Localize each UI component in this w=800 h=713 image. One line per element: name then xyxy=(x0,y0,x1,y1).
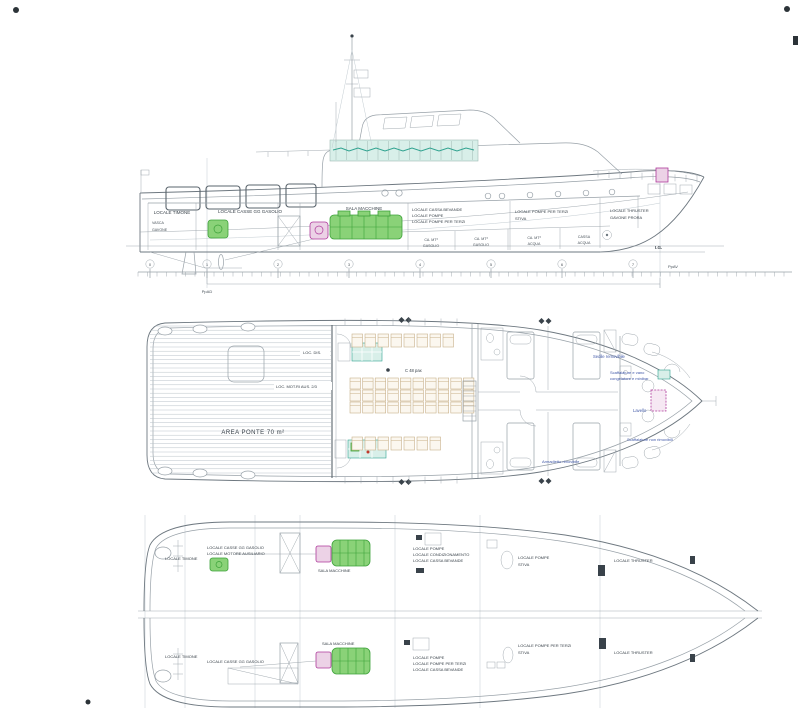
bitt-diamond xyxy=(539,478,545,484)
passenger-seat xyxy=(400,402,411,413)
general-arrangement-drawing: LOCALE TIMONE VASCA GAVONE LOCALE CASSE … xyxy=(0,0,800,713)
gearbox-plan-icon xyxy=(316,652,331,668)
annotation-scaffalature-non: Scaffalature non rimovibili xyxy=(627,437,673,442)
label-stiva-1: LOCALE POMPE xyxy=(518,555,550,560)
deck-cleats xyxy=(158,323,255,479)
profile-labels: LOCALE TIMONE VASCA GAVONE LOCALE CASSE … xyxy=(152,206,662,250)
tank-label: ACQUA xyxy=(578,241,591,245)
passenger-seat xyxy=(375,390,386,401)
tank-label: CA. MT³ xyxy=(424,238,438,242)
passenger-seat xyxy=(417,437,428,450)
annotation-scaffalature-1: Scaffalature e vano xyxy=(610,370,645,375)
station-number: 4 xyxy=(419,263,421,267)
label-pompe: LOCALE POMPE xyxy=(412,213,444,218)
passenger-seat xyxy=(430,334,441,347)
passenger-seat xyxy=(388,402,399,413)
passenger-seat xyxy=(413,402,424,413)
label-locale-timone: LOCALE TIMONE xyxy=(154,210,190,215)
rudder-stock-icon xyxy=(173,648,183,680)
antenna-platform-icon xyxy=(354,88,370,97)
thruster-marker xyxy=(598,565,605,576)
passenger-seat xyxy=(404,437,415,450)
station-number: 5 xyxy=(490,263,492,267)
frame-grid-lines xyxy=(145,515,600,708)
label-pompe-terzi-2: LOCALE POMPE PER TERZI xyxy=(515,209,568,214)
bathroom-fixtures xyxy=(481,328,503,474)
aux-engine-icon xyxy=(210,558,228,571)
saloon-window-band xyxy=(330,140,478,161)
lower-deck-bottom-half: LOCALE TIMONE LOCALE CASSE GG GASOLIO SA… xyxy=(144,618,758,707)
passenger-seat xyxy=(378,437,389,450)
rudder-propeller xyxy=(150,238,318,274)
removable-unit-icon xyxy=(651,390,666,411)
main-engine-icon xyxy=(330,211,402,239)
portholes xyxy=(382,189,615,199)
annotation-scaffalature-2: congelatore e minibar xyxy=(610,376,649,381)
tank-label: GASOLIO xyxy=(423,244,439,248)
passenger-seat xyxy=(350,378,361,389)
label-pompe-1: LOCALE POMPE xyxy=(413,546,445,551)
label-loc-dis: LOC. DIS. xyxy=(303,350,321,355)
label-ig: I.G. xyxy=(655,245,662,250)
passenger-seat xyxy=(417,334,428,347)
station-number: 0 xyxy=(149,263,151,267)
passenger-seat xyxy=(391,334,402,347)
mast-light-icon xyxy=(350,34,353,37)
passenger-seat xyxy=(451,402,462,413)
label-pompe-3: LOCALE CASSA BEVANDE xyxy=(413,667,464,672)
drawing-sheet: LOCALE TIMONE VASCA GAVONE LOCALE CASSE … xyxy=(0,0,800,713)
label-stiva: STIVA xyxy=(515,216,527,221)
bitt-diamond xyxy=(546,478,552,484)
scan-artifacts xyxy=(13,6,798,705)
tank-label: CASSA xyxy=(578,235,591,239)
annotation-armadietto: Armadietto rimovibile xyxy=(542,459,580,464)
label-pompe-2: LOCALE CONDIZIONAMENTO xyxy=(413,552,469,557)
profile-view: LOCALE TIMONE VASCA GAVONE LOCALE CASSE … xyxy=(126,34,792,294)
bitt-diamond xyxy=(539,318,545,324)
label-gavone-prora: GAVONE PRORA xyxy=(610,215,642,220)
passenger-seat xyxy=(413,390,424,401)
label-vasca: VASCA xyxy=(152,221,165,225)
aux-pump-icon xyxy=(208,220,228,238)
tank-label: CA. MT³ xyxy=(474,237,488,241)
annotation-sedile: Sedile removibile xyxy=(593,354,626,359)
label-stiva-2: STIVA xyxy=(518,562,530,567)
thruster-marker xyxy=(599,638,606,649)
station-number: 2 xyxy=(277,263,279,267)
bed xyxy=(507,332,534,379)
label-thruster: LOCALE THRUSTER xyxy=(614,558,653,563)
main-deck-plan: LOC. MOT.RI AUS. 2/3 LOC. DIS. AREA PONT… xyxy=(147,317,716,485)
passenger-seat xyxy=(363,378,374,389)
label-stiva-1: LOCALE POMPE PER TERZI xyxy=(518,643,571,648)
passenger-seat xyxy=(451,378,462,389)
label-timone: LOCALE TIMONE xyxy=(165,654,198,659)
passenger-seat xyxy=(400,390,411,401)
red-indicator-dot xyxy=(367,451,370,454)
bitt-diamond xyxy=(406,479,412,485)
label-loc-motori: LOC. MOT.RI AUS. 2/3 xyxy=(276,384,318,389)
windlass-icon xyxy=(656,168,668,182)
superstructure-profile xyxy=(141,110,700,210)
label-thruster: LOCALE THRUSTER xyxy=(614,650,653,655)
mast-icon xyxy=(332,34,372,148)
label-ppad: PpAD xyxy=(202,289,213,294)
main-engine-plan-icon xyxy=(332,648,370,674)
passenger-seat xyxy=(404,334,415,347)
radar-box-icon xyxy=(354,70,368,78)
cabin-section xyxy=(478,326,620,476)
label-sala-macchine: SALA MACCHINE xyxy=(346,206,383,211)
lower-deck-plan: LOCALE TIMONE LOCALE CASSE GG GASOLIO LO… xyxy=(138,515,762,708)
passenger-seat xyxy=(391,437,402,450)
passenger-seat xyxy=(388,390,399,401)
label-seat-count: C 48 pax xyxy=(405,368,423,373)
gearbox-icon xyxy=(310,222,328,239)
passenger-seat xyxy=(451,390,462,401)
profile-compartments xyxy=(148,196,640,250)
passenger-seat xyxy=(463,402,474,413)
frame-ruler: 01234567 PpAD PpAV xyxy=(138,260,792,294)
passenger-seat xyxy=(430,437,441,450)
tank-label: GASOLIO xyxy=(473,243,489,247)
passenger-seat xyxy=(438,390,449,401)
passenger-seat xyxy=(350,402,361,413)
label-pompe-1: LOCALE POMPE xyxy=(413,655,445,660)
passenger-seat xyxy=(463,390,474,401)
stern-flag xyxy=(141,170,149,192)
label-casse-1: LOCALE CASSE GG GASOLIO xyxy=(207,545,264,550)
tank-label: ACQUA xyxy=(528,242,541,246)
station-number: 3 xyxy=(348,263,350,267)
label-pompe-terzi: LOCALE POMPE PER TERZI xyxy=(412,219,465,224)
passenger-seat xyxy=(426,402,437,413)
label-timone: LOCALE TIMONE xyxy=(165,556,198,561)
passenger-seat xyxy=(426,390,437,401)
label-casse: LOCALE CASSE GG GASOLIO xyxy=(207,659,264,664)
label-stiva-2: STIVA xyxy=(518,650,530,655)
passenger-seat xyxy=(363,390,374,401)
passenger-seat xyxy=(365,437,376,450)
bitt-diamond xyxy=(406,317,412,323)
bed xyxy=(507,423,534,470)
cross-brace-icon xyxy=(280,533,300,573)
lower-deck-top-half: LOCALE TIMONE LOCALE CASSE GG GASOLIO LO… xyxy=(144,522,758,611)
label-sala: SALA MACCHINE xyxy=(318,568,351,573)
passenger-seat xyxy=(378,334,389,347)
main-engine-plan-icon xyxy=(332,540,370,566)
passenger-seat xyxy=(413,378,424,389)
cross-brace-icon xyxy=(278,216,300,246)
passenger-seat xyxy=(375,378,386,389)
tank-label: CA. MT³ xyxy=(527,236,541,240)
passenger-seat xyxy=(365,334,376,347)
wheelhouse-windows xyxy=(383,114,461,129)
passenger-seat xyxy=(438,378,449,389)
passenger-seat xyxy=(463,378,474,389)
wardrobe xyxy=(604,330,616,472)
label-casse-2: LOCALE MOTORE AUSILIARIO xyxy=(207,551,265,556)
passenger-seat xyxy=(352,437,363,450)
lower-bottom-labels: LOCALE TIMONE LOCALE CASSE GG GASOLIO SA… xyxy=(165,641,653,672)
label-thruster: LOCALE THRUSTER xyxy=(610,208,649,213)
label-ppav: PpAV xyxy=(668,264,678,269)
bow-lounge xyxy=(620,333,690,469)
passenger-seat xyxy=(363,402,374,413)
passenger-seat xyxy=(426,378,437,389)
label-sala: SALA MACCHINE xyxy=(322,641,355,646)
bitt-diamond xyxy=(399,479,405,485)
lower-top-labels: LOCALE TIMONE LOCALE CASSE GG GASOLIO LO… xyxy=(165,545,653,573)
gearbox-plan-icon xyxy=(316,546,331,562)
stern-manhole xyxy=(155,670,171,682)
minibar-icon xyxy=(658,370,670,379)
passenger-seat xyxy=(350,390,361,401)
annotation-lavello: Lavello xyxy=(633,408,647,413)
passenger-seat xyxy=(352,334,363,347)
label-cassa-bevande: LOCALE CASSA BEVANDE xyxy=(412,207,463,212)
passenger-seat xyxy=(443,334,454,347)
label-gavone: GAVONE xyxy=(152,228,168,232)
passenger-seat xyxy=(388,378,399,389)
passenger-seat xyxy=(375,402,386,413)
label-pompe-3: LOCALE CASSA BEVANDE xyxy=(413,558,464,563)
passenger-seat xyxy=(438,402,449,413)
bitt-diamond xyxy=(546,318,552,324)
label-area-ponte: AREA PONTE 70 m² xyxy=(221,430,284,436)
station-number: 6 xyxy=(561,263,563,267)
saloon: C 48 pax xyxy=(335,319,478,484)
label-pompe-2: LOCALE POMPE PER TERZI xyxy=(413,661,466,666)
bitt-diamond xyxy=(399,317,405,323)
passenger-seat xyxy=(400,378,411,389)
label-casse-gasolio: LOCALE CASSE GG GASOLIO xyxy=(218,209,283,214)
station-number: 1 xyxy=(206,263,208,267)
station-number: 7 xyxy=(632,263,634,267)
